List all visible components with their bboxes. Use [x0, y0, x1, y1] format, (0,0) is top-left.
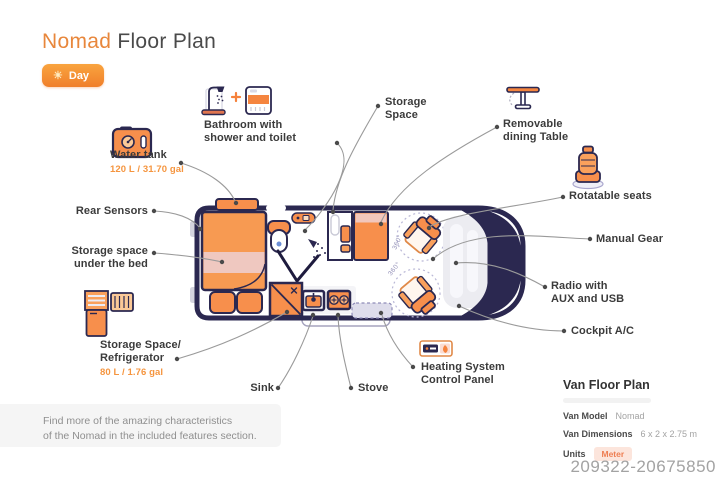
radio-label: Radio with AUX and USB: [551, 280, 624, 306]
plus-icon: [232, 93, 240, 101]
heating-label: Heating System Control Panel: [421, 361, 505, 387]
bench-cushion: [210, 292, 235, 313]
sun-icon: ☀: [53, 69, 63, 82]
stove-label: Stove: [358, 382, 388, 395]
bed-plan: [202, 212, 266, 290]
manual-gear-label: Manual Gear: [596, 233, 663, 246]
image-id: 209322-20675850: [570, 457, 716, 477]
heating-zone-plan: [352, 303, 392, 318]
van-model-row: Van Model Nomad: [563, 411, 718, 421]
van-dimensions-row: Van Dimensions 6 x 2 x 2.75 m: [563, 429, 718, 439]
under-bed-storage-label: Storage space under the bed: [58, 245, 148, 271]
floor-plan-page: 360° 360°: [0, 0, 720, 480]
rear-sensors-label: Rear Sensors: [58, 205, 148, 218]
divider: [563, 398, 651, 403]
shower-icon: [202, 87, 225, 115]
page-title-accent: Nomad: [42, 30, 111, 53]
footer-note: Find more of the amazing characteristics…: [0, 404, 281, 447]
heating-panel-icon: [420, 341, 452, 356]
page-title: Nomad Floor Plan: [42, 30, 216, 54]
wall-window: [266, 205, 286, 211]
dining-table-icon: [507, 88, 539, 109]
water-tank-label: Water tank 120 L / 31.70 gal: [110, 149, 184, 176]
cockpit-ac-label: Cockpit A/C: [571, 325, 634, 338]
wardrobe-plan: [328, 212, 352, 260]
storage-space-label: Storage Space: [385, 96, 427, 122]
kitchen-plan: [270, 283, 356, 316]
van-info-title: Van Floor Plan: [563, 378, 718, 392]
van-info-panel: Van Floor Plan Van Model Nomad Van Dimen…: [563, 378, 718, 461]
bathroom-label: Bathroom with shower and toilet: [204, 119, 296, 145]
sink-label: Sink: [244, 382, 274, 395]
bench-cushion: [237, 292, 262, 313]
day-mode-toggle[interactable]: ☀ Day: [42, 64, 104, 87]
dining-table-label: Removable dining Table: [503, 118, 568, 144]
water-tank-capacity: 120 L / 31.70 gal: [110, 164, 184, 175]
refrigerator-label: Storage Space/ Refrigerator 80 L / 1.76 …: [100, 339, 181, 379]
rotatable-seats-label: Rotatable seats: [569, 190, 652, 203]
page-title-rest: Floor Plan: [117, 30, 216, 53]
refrigerator-capacity: 80 L / 1.76 gal: [100, 367, 181, 378]
rotatable-seat-icon: [573, 147, 603, 189]
toilet-icon: [246, 87, 271, 114]
refrigerator-icon: [85, 291, 133, 336]
day-mode-label: Day: [69, 70, 89, 82]
